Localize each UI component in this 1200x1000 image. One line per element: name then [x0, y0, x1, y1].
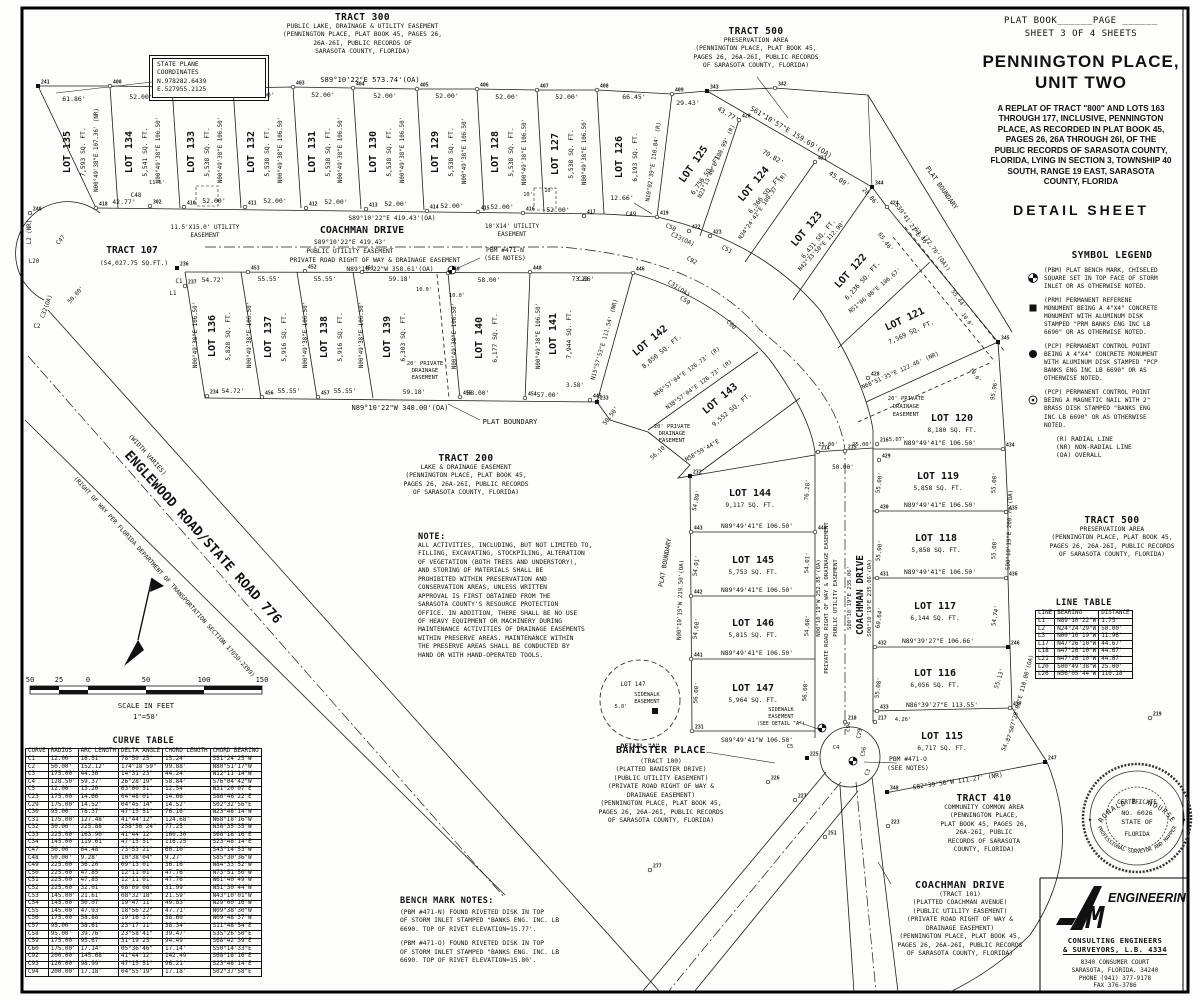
table-cell: N23°48'14"W — [210, 809, 261, 817]
map-label: 3.58' — [566, 382, 584, 389]
text-line: PAGES 26, 26A-26I, PUBLIC RECORDS — [885, 942, 1035, 950]
tract-300-note: TRACT 300 PUBLIC LAKE, DRAINAGE & UTILIT… — [255, 12, 470, 57]
map-label: EASEMENT — [768, 714, 794, 720]
page-title: PENNINGTON PLACE, — [972, 51, 1190, 72]
map-label: N00°49'38"E 106.50' — [303, 302, 309, 368]
text-line: SARASOTA, FLORIDA. 34240 — [1042, 967, 1188, 975]
survey-point-marker — [875, 509, 879, 513]
table-row: C52225.00'32.01'08°09'08"31.99'N51°30'44… — [26, 885, 262, 893]
survey-point-marker — [873, 720, 877, 724]
survey-point-marker — [773, 86, 777, 90]
map-label: COACHMAN DRIVE — [320, 225, 404, 236]
text-line: (PRIVATE ROAD RIGHT OF WAY & — [885, 916, 1035, 924]
table-row: C59175.00'95.67'31°19'25"94.49'S68°42'39… — [26, 938, 262, 946]
map-label: 56.10' — [650, 443, 670, 461]
table-cell: 78.37' — [78, 809, 118, 817]
survey-point-number: 421 — [818, 156, 827, 162]
text-line: THROUGH 177, INCLUSIVE, PENNINGTON — [972, 114, 1190, 125]
text-line: OF HEAVY EQUIPMENT OR MACHINERY DURING — [418, 618, 673, 626]
map-label: 52.00' — [384, 200, 407, 208]
survey-point-number: 457 — [321, 391, 330, 397]
map-label: 55.08' — [875, 677, 884, 699]
map-label: C33(OA) — [670, 231, 696, 248]
survey-point-number: 218 — [848, 716, 857, 722]
map-label: LOT 116 — [914, 668, 956, 679]
survey-point-number: 440 — [818, 526, 827, 532]
map-label: N00°10'19"W 219.50'(OA) — [677, 560, 686, 640]
text-line: OF SARASOTA COUNTY, FLORIDA) — [565, 817, 757, 825]
table-row: C93120.00'98.99'47°15'51"96.21'S23°48'14… — [26, 961, 262, 969]
survey-point-marker — [793, 798, 797, 802]
map-label: 54.72' — [202, 277, 225, 284]
line-table: LINEBEARINGDISTANCEL1N89°10'22"W1.75'L2N… — [1035, 610, 1133, 679]
map-label: 59.18' — [403, 389, 426, 396]
text-line: COUNTY, FLORIDA — [972, 177, 1190, 188]
svg-text:150: 150 — [256, 676, 269, 684]
table-cell: 175.00' — [48, 794, 78, 802]
map-label: N15°57'53"E 111.54' (NR) — [591, 299, 620, 381]
survey-point-number: 247 — [1048, 756, 1057, 762]
table-row: C92200.00'145.68'41°44'12"142.49'S68°18'… — [26, 954, 262, 962]
map-label: LOT 137 — [263, 316, 274, 358]
map-label: 6,193 SQ. FT. — [632, 132, 639, 181]
tract-410-note: TRACT 410 COMMUNITY COMMON AREA(PENNINGT… — [898, 793, 1070, 855]
survey-point-number: 409 — [675, 88, 684, 94]
north-arrow-icon — [124, 578, 164, 666]
text-line: FILLING, EXCAVATING, STOCKPILING, ALTERA… — [418, 550, 673, 558]
map-label: 5,916 SQ. FT. — [337, 312, 344, 361]
map-label: 10.0' — [449, 293, 465, 299]
survey-point-marker — [304, 206, 308, 210]
survey-point-marker — [766, 780, 770, 784]
table-row: C112.00'16.51'78°50'25"15.24'S51°24'25"W — [26, 756, 262, 764]
map-label: N00°49'38"E 106.50' — [193, 302, 199, 368]
map-label: 9,117 SQ. FT. — [725, 502, 774, 509]
survey-point-number: 407 — [540, 84, 549, 90]
table-row: C5795.00'38.61'23°17'11"38.34'S11°48'54"… — [26, 923, 262, 931]
survey-point-marker — [816, 450, 820, 454]
survey-point-marker — [737, 118, 741, 122]
text-line: COORDINATES — [157, 69, 261, 77]
map-label: 70.82' — [761, 148, 785, 167]
text-line: (PENNINGTON PLACE, PLAT BOOK 45, — [1030, 534, 1194, 542]
map-label: 52.00' — [546, 206, 569, 214]
survey-point-marker — [885, 790, 889, 794]
map-label: 5,538 SQ. FT. — [325, 127, 332, 176]
text-line: PAGES 26, 26A-26I, PUBLIC RECORDS — [1030, 543, 1194, 551]
survey-point-number: 419 — [660, 211, 669, 217]
map-label: 29.43' — [676, 99, 699, 107]
pbm-benchmark-icon — [818, 724, 826, 732]
text-line: (PENNINGTON PLACE, PLAT BOOK 45, — [650, 45, 862, 53]
page-title-2: UNIT TWO — [972, 72, 1190, 93]
map-label: LOT 146 — [732, 618, 774, 629]
table-cell: N47°26'10"W — [1055, 656, 1099, 664]
table-cell: 19°47'11" — [119, 900, 163, 908]
map-label: PRIVATE ROAD RIGHT OF WAY & DRAINAGE EAS… — [824, 522, 830, 674]
map-label: 5,858 SQ. FT. — [911, 547, 960, 554]
map-label: C47 — [56, 234, 68, 246]
table-cell: 225.00' — [48, 885, 78, 893]
prm-symbol-icon — [1028, 297, 1044, 337]
text-line: WITHIN PRESERVE AREAS. MAINTENANCE WITHI… — [418, 635, 673, 643]
table-row: C3095.00'78.37'47°15'51"76.16'N23°48'14"… — [26, 809, 262, 817]
map-label: LOT 130 — [368, 131, 379, 173]
survey-point-marker — [1004, 576, 1008, 580]
map-label: TRACT 107 — [106, 245, 157, 256]
table-cell: N12°11'14"W — [210, 771, 261, 779]
survey-point-number: 411 — [248, 201, 257, 207]
map-label: 52.00' — [373, 92, 396, 100]
map-label: LOT 144 — [729, 488, 771, 499]
survey-point-number: 345 — [1001, 336, 1010, 342]
map-label: N89°10'22"W 358.61'(OA) — [346, 265, 433, 273]
map-label: 55.55' — [334, 388, 357, 395]
map-label: 60.64' — [876, 607, 885, 629]
map-label: 55.00' — [991, 472, 999, 493]
map-label: 5,538 SQ. FT. — [204, 127, 211, 176]
table-cell: N00°10'19"W — [1055, 633, 1099, 641]
scale-ratio: 1"=50' — [133, 712, 159, 721]
map-label: 52.00' — [440, 202, 463, 210]
map-label: EASEMENT — [893, 412, 920, 418]
survey-point-number: 454 — [528, 392, 537, 398]
table-cell: N89°10'22"W — [1055, 618, 1099, 626]
text-line: FAX 376-3786 — [1042, 982, 1188, 990]
map-label: C60 — [725, 319, 738, 332]
survey-point-number: 405 — [420, 83, 429, 89]
survey-point-marker — [595, 400, 599, 404]
text-line: (PLATTED COACHMAN AVENUE) — [885, 899, 1035, 907]
table-cell: 95.00' — [48, 923, 78, 931]
text-line: PAGES 26, 26A-26I, PUBLIC RECORDS — [360, 481, 572, 489]
map-label: 6,056 SQ. FT. — [910, 682, 959, 689]
map-label: LOT 120 — [931, 413, 973, 424]
map-label: 20' PRIVATE — [654, 424, 690, 430]
firm-tagline: CONSULTING ENGINEERS& SURVEYORS, L.B. 43… — [1063, 936, 1167, 955]
survey-point-marker — [595, 88, 599, 92]
survey-point-number: 416 — [526, 207, 535, 213]
table-cell: C5 — [26, 786, 49, 794]
table-cell: 17.18' — [78, 969, 118, 977]
table-cell: 44.24' — [163, 771, 211, 779]
pbm-benchmark-icon — [849, 757, 857, 765]
text-line: PLACE, AS RECORDED IN PLAT BOOK 45, — [972, 125, 1190, 136]
map-label: 54.72' — [222, 388, 245, 395]
map-label: N89°49'41"E 106.50' — [721, 522, 793, 530]
map-label: N89°49'41"E 106.50' — [904, 439, 976, 447]
map-label: C3 — [864, 768, 872, 777]
map-label: LOT 133 — [186, 131, 197, 173]
survey-point-marker — [877, 458, 881, 462]
map-label: PUBLIC UTILITY EASEMENT — [833, 559, 839, 637]
map-label: N68°51'35"E 122.46' (NR) — [861, 351, 940, 391]
map-label: SIDEWALK — [634, 692, 660, 698]
map-label: 7,944 SQ. FT. — [566, 309, 573, 358]
table-cell: C54 — [26, 900, 49, 908]
map-label: 54.89' — [692, 490, 702, 512]
survey-point-number: 429 — [882, 454, 891, 460]
map-label: PLAT BOUNDARY — [483, 418, 539, 426]
table-cell: 12.00' — [48, 786, 78, 794]
survey-point-number: 404 — [356, 82, 365, 88]
map-label: DRAINAGE — [659, 431, 686, 437]
map-label: 50.50' — [601, 405, 620, 426]
table-cell: 225.00' — [48, 862, 78, 870]
legend-item: (PBM) PLAT BENCH MARK, CHISELEDSQUARE SE… — [1028, 267, 1196, 291]
map-label: EASEMENT — [412, 375, 439, 381]
table-cell: 04°55'19" — [119, 969, 163, 977]
table-cell: 31°19'25" — [119, 938, 163, 946]
text-line: THE PRESERVE AREAS SHALL BE CONDUCTED BY — [418, 643, 673, 651]
table-cell: S11°48'54"E — [210, 923, 261, 931]
text-line: (TRACT 100) — [565, 758, 757, 766]
text-line: (OA) OVERALL — [1056, 452, 1196, 460]
table-cell: L18 — [1036, 648, 1055, 656]
text-line: N.978282.6439 — [157, 78, 261, 86]
map-label: C2 — [34, 324, 41, 330]
table-cell: 77.25' — [163, 824, 211, 832]
table-cell: C93 — [26, 961, 49, 969]
text-line: 6690. TOP OF RIVET ELEVATION=15.80'. — [400, 957, 615, 965]
pbm-benchmark-icon — [448, 266, 456, 274]
survey-point-marker — [875, 576, 879, 580]
text-line: 26A-26I, PUBLIC RECORDS OF — [255, 40, 470, 48]
survey-point-number: 437 — [1013, 702, 1022, 708]
table-row: C3175.00'44.36'14°31'23"44.24'N12°11'14"… — [26, 771, 262, 779]
map-label: 52.00' — [311, 91, 334, 99]
survey-point-number: 236 — [180, 262, 189, 268]
table-row: C94200.00'17.18'04°55'19"17.18'S02°37'58… — [26, 969, 262, 977]
survey-point-number: 417 — [587, 210, 596, 216]
map-label: S07°20'04"E 110.00'(OA) — [1009, 654, 1036, 733]
map-label: 52.00' — [495, 93, 518, 101]
table-cell: 32.01' — [78, 885, 118, 893]
replat-description: A REPLAT OF TRACT "800" AND LOTS 163THRO… — [972, 104, 1190, 188]
column-header: DISTANCE — [1099, 611, 1132, 619]
table-cell: 50.00' — [48, 824, 78, 832]
survey-point-number: 403 — [296, 81, 305, 87]
map-label: 10' — [544, 188, 554, 194]
survey-point-marker — [521, 211, 525, 215]
table-cell: 145.00' — [48, 900, 78, 908]
map-label: ENGLEWOOD ROAD/STATE ROAD 776 — [121, 448, 284, 627]
survey-point-marker — [535, 88, 539, 92]
table-cell: 145.68' — [78, 954, 118, 962]
table-cell: C30 — [26, 809, 49, 817]
svg-text:50: 50 — [142, 676, 150, 684]
tract-200-note: TRACT 200 LAKE & DRAINAGE EASEMENT(PENNI… — [360, 453, 572, 498]
map-label: 5,916 SQ. FT. — [281, 312, 288, 361]
map-label: 54.60' — [693, 618, 702, 640]
text-line: (PENNINGTON PLACE, PLAT BOOK 45, — [360, 472, 572, 480]
survey-point-number: 456 — [265, 391, 274, 397]
detail-sheet-label: DETAIL SHEET — [972, 202, 1190, 218]
curve-table: CURVERADIUSARC LENGTHDELTA ANGLECHORD LE… — [25, 748, 262, 977]
map-label: 8,180 SQ. FT. — [927, 427, 976, 434]
survey-point-marker — [205, 394, 209, 398]
table-row: C49225.00'36.20'09°13'01"36.16'N84°33'52… — [26, 862, 262, 870]
map-label: LOT 134 — [124, 131, 135, 173]
map-label: 5,828 SQ. FT. — [225, 311, 232, 360]
table-cell: N31°20'07"E — [210, 786, 261, 794]
survey-point-number: 408 — [600, 84, 609, 90]
table-row: C4750.00'64.48'73°53'21"60.10'S43°14'53"… — [26, 847, 262, 855]
map-label: N00°49'38"E 106.50' — [247, 302, 253, 368]
map-label: 50.00' — [832, 464, 854, 471]
svg-text:◆: ◆ — [1088, 817, 1091, 823]
survey-point-number: 277 — [653, 864, 662, 870]
table-cell: 78°50'25" — [119, 756, 163, 764]
survey-point-number: 435 — [1009, 506, 1018, 512]
legend-title: SYMBOL LEGEND — [1028, 250, 1196, 261]
map-label: 54.87' — [1001, 731, 1015, 753]
survey-point-marker — [1004, 510, 1008, 514]
table-cell: 50.07' — [78, 900, 118, 908]
text-line: PHONE (941) 377-9178 — [1042, 975, 1188, 983]
table-cell: 225.88' — [78, 824, 118, 832]
tract-500-top-note: TRACT 500 PRESERVATION AREA(PENNINGTON P… — [650, 26, 862, 71]
map-label: 5,538 SQ. FT. — [264, 127, 271, 176]
survey-point-number: 443 — [694, 526, 703, 532]
survey-point-marker — [843, 449, 847, 453]
survey-point-number: 453 — [251, 266, 260, 272]
table-row: C54145.00'50.07'19°47'11"49.83'N29°00'16… — [26, 900, 262, 908]
map-label: C32(OA) — [40, 294, 54, 319]
survey-point-number: 433 — [880, 705, 889, 711]
survey-point-marker — [1148, 716, 1152, 720]
survey-point-number: 233 — [600, 396, 609, 402]
map-label: 55.55' — [258, 276, 281, 283]
survey-point-marker — [364, 207, 368, 211]
table-cell: C94 — [26, 969, 49, 977]
text-line: PUBLIC LAKE, DRAINAGE & UTILITY EASEMENT — [255, 23, 470, 31]
table-cell: 200.00' — [48, 954, 78, 962]
survey-point-number: 219 — [1153, 712, 1162, 718]
map-label: 10.0' — [968, 367, 982, 384]
table-cell: S86°46'22"E — [210, 794, 261, 802]
survey-point-marker — [183, 284, 187, 288]
survey-point-marker — [813, 160, 817, 164]
text-line: SARASOTA COUNTY'S RESOURCE PROTECTION — [418, 601, 673, 609]
text-line: PAGES 26, 26A-26I, PUBLIC RECORDS — [650, 54, 862, 62]
table-cell: L3 — [1036, 633, 1055, 641]
survey-point-marker — [303, 269, 307, 273]
survey-point-marker — [805, 756, 809, 760]
table-cell: 200.00' — [48, 969, 78, 977]
text-line: (PLATTED BANISTER DRIVE) — [565, 766, 757, 774]
map-label: EASEMENT — [498, 231, 527, 238]
text-line: STATE PLANE — [157, 61, 261, 69]
text-line: DRAINAGE EASEMENT) — [565, 792, 757, 800]
map-label: 20' PRIVATE — [407, 361, 443, 367]
map-label: N89°39'27"E 106.66' — [902, 637, 974, 645]
map-label: LOT 115 — [921, 731, 963, 742]
survey-point-number: 452 — [308, 265, 317, 271]
survey-point-marker — [1043, 760, 1047, 764]
table-cell: 73°53'21" — [119, 847, 163, 855]
map-label: C29 — [856, 728, 864, 739]
survey-point-marker — [260, 395, 264, 399]
map-label: 52.00' — [555, 93, 578, 101]
map-label: 5,753 SQ. FT. — [728, 569, 777, 576]
survey-point-number: 226 — [771, 776, 780, 782]
table-row: L1N89°10'22"W1.75' — [1036, 618, 1133, 626]
table-cell: 36.20' — [78, 862, 118, 870]
text-line: CONSERVATION AREAS, UNLESS WRITTEN — [418, 584, 673, 592]
map-label: L2 (NR) — [27, 220, 33, 244]
map-label: 4.26' — [895, 717, 912, 723]
text-line: 26A-26I, PUBLIC — [898, 829, 1070, 837]
firm-block: M ENGINEERING, INC. CONSULTING ENGINEERS… — [1042, 884, 1188, 990]
survey-point-marker — [582, 214, 586, 218]
table-cell: S23°48'14"E — [210, 961, 261, 969]
map-label: 58.00' — [478, 277, 501, 284]
table-cell: 16.51' — [78, 756, 118, 764]
map-label: 6,303 SQ. FT. — [400, 312, 407, 361]
survey-point-marker — [655, 215, 659, 219]
survey-point-marker — [108, 84, 112, 88]
map-label: 52.00' — [263, 197, 286, 205]
map-label: 20' PRIVATE — [888, 396, 924, 402]
survey-point-marker — [1006, 645, 1010, 649]
column-header: RADIUS — [48, 749, 78, 757]
table-cell: L21 — [1036, 656, 1055, 664]
map-label: LOT 140 — [474, 317, 485, 359]
table-cell: 36.16' — [163, 862, 211, 870]
survey-point-number: 412 — [309, 202, 318, 208]
table-cell: C1 — [26, 756, 49, 764]
survey-point-number: 246 — [1011, 641, 1020, 647]
table-cell: 258°50'24" — [119, 824, 163, 832]
table-cell: C59 — [26, 938, 49, 946]
map-label: LOT 128 — [490, 131, 501, 173]
text-line: APPROVAL IS FIRST OBTAINED FROM THE — [418, 593, 673, 601]
column-header: LINE — [1036, 611, 1055, 619]
survey-point-marker — [148, 204, 152, 208]
survey-point-number: 448 — [533, 266, 542, 272]
survey-point-number: 455 — [463, 391, 472, 397]
column-header: BEARING — [1055, 611, 1099, 619]
table-cell: 09°13'01" — [119, 862, 163, 870]
map-label: 55.00' — [876, 540, 885, 562]
text-line: (PBM #471-N) FOUND RIVETED DISK IN TOP — [400, 909, 615, 917]
bench-mark-notes: BENCH MARK NOTES: (PBM #471-N) FOUND RIV… — [400, 896, 615, 966]
title-block: PLAT BOOK______PAGE ______ SHEET 3 OF 4 … — [972, 16, 1190, 218]
survey-point-marker — [687, 229, 691, 233]
map-label: 52.00' — [202, 197, 225, 205]
table-cell: 31.99' — [163, 885, 211, 893]
table-row: C3250.00'225.88'258°50'24"77.25'N38°35'3… — [26, 824, 262, 832]
svg-text:◆: ◆ — [1182, 817, 1185, 823]
text-line: (TRACT 101) — [885, 891, 1035, 899]
text-line: PRESERVATION AREA — [650, 37, 862, 45]
text-line: SOUTH, RANGE 19 EAST, SARASOTA — [972, 167, 1190, 178]
map-label: LOT 129 — [430, 131, 441, 173]
map-label: EASEMENT — [659, 438, 686, 444]
map-label: DRAINAGE — [412, 368, 439, 374]
map-label: 59.18' — [389, 276, 412, 283]
map-label: 5.0' — [615, 704, 628, 710]
line-table-block: LINE TABLE LINEBEARINGDISTANCEL1N89°10'2… — [1035, 598, 1133, 679]
text-line: (PUBLIC UTILITY EASEMENT) — [565, 775, 757, 783]
survey-point-number: 251 — [828, 831, 837, 837]
text-line: (R) RADIAL LINE — [1056, 436, 1196, 444]
text-line: DRAINAGE EASEMENT) — [885, 925, 1035, 933]
table-cell: N51°30'44"W — [210, 885, 261, 893]
map-label: N00°49'38"E 106.50' — [582, 119, 588, 185]
map-label: C56 — [860, 746, 868, 757]
